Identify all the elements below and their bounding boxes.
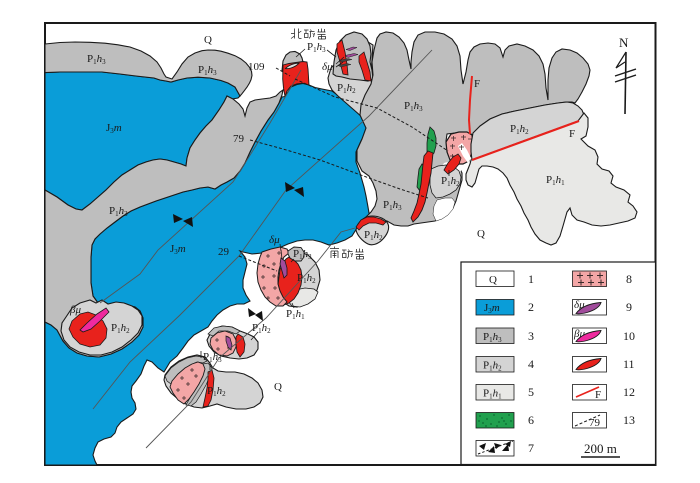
svg-text:J3m: J3m	[170, 243, 186, 256]
svg-text:79: 79	[233, 133, 245, 145]
svg-text:2: 2	[528, 300, 534, 314]
svg-text:F: F	[569, 128, 575, 140]
svg-text:10: 10	[623, 329, 635, 343]
svg-text:δμ: δμ	[322, 61, 333, 73]
svg-text:Q: Q	[477, 228, 485, 240]
svg-text:13: 13	[623, 413, 635, 427]
svg-text:5: 5	[528, 385, 534, 399]
svg-text:3: 3	[528, 329, 534, 343]
svg-text:109: 109	[248, 61, 265, 73]
svg-text:79: 79	[589, 417, 601, 429]
svg-text:8: 8	[626, 272, 632, 286]
svg-text:29: 29	[218, 246, 230, 258]
svg-text:12: 12	[623, 385, 635, 399]
svg-text:4: 4	[528, 357, 534, 371]
svg-text:δμ: δμ	[269, 234, 280, 246]
svg-text:11: 11	[623, 357, 635, 371]
svg-text:7: 7	[528, 441, 534, 455]
svg-text:Q: Q	[204, 34, 212, 46]
svg-text:200 m: 200 m	[584, 441, 617, 456]
svg-text:J3m: J3m	[484, 302, 500, 315]
svg-text:βμ: βμ	[69, 304, 81, 316]
svg-text:N: N	[619, 35, 629, 50]
svg-text:Q: Q	[274, 381, 282, 393]
svg-text:F: F	[595, 389, 601, 401]
svg-text:9: 9	[626, 300, 632, 314]
svg-text:6: 6	[528, 413, 534, 427]
svg-text:J3m: J3m	[106, 122, 122, 135]
svg-text:F: F	[474, 78, 480, 90]
svg-text:1: 1	[528, 272, 534, 286]
svg-text:Q: Q	[489, 274, 497, 286]
